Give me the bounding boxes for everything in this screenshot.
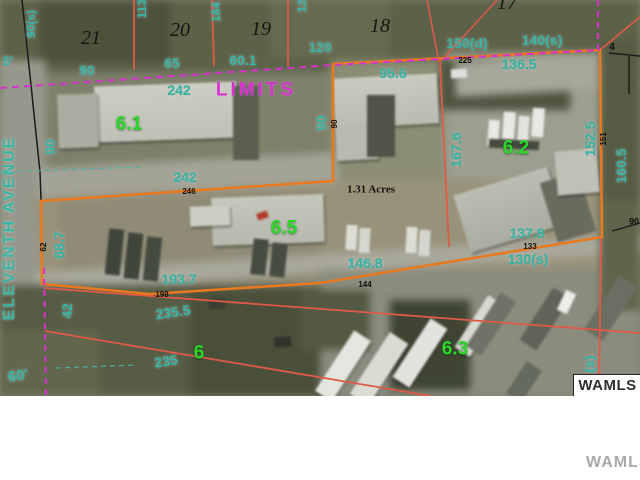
map-label--s-: (s) xyxy=(582,355,596,372)
map-label-65: 65 xyxy=(164,56,180,70)
map-label-6-1: 6.1 xyxy=(116,115,142,134)
map-label-198: 198 xyxy=(155,291,168,299)
map-label-160-5: 160.5 xyxy=(614,148,628,183)
map-label-120: 120 xyxy=(308,40,331,54)
map-label-146-8: 146.8 xyxy=(347,256,382,270)
map-label-62: 62 xyxy=(40,243,48,252)
map-label-4: 4 xyxy=(609,43,615,53)
map-label-20: 20 xyxy=(170,20,190,40)
map-label-90-s-: 90(s) xyxy=(25,10,37,38)
map-label-19: 19 xyxy=(251,19,271,39)
wamls-watermark-box: WAMLS xyxy=(573,374,640,396)
map-label-150-d-: 150(d) xyxy=(446,36,487,50)
map-label-184: 184 xyxy=(210,2,222,22)
map-label-90: 90 xyxy=(79,63,95,77)
map-label-42: 42 xyxy=(60,303,74,319)
map-label-21: 21 xyxy=(81,28,101,48)
map-label-137-8: 137.8 xyxy=(509,226,544,240)
map-label-235-5: 235.5 xyxy=(155,303,192,322)
map-label-144: 144 xyxy=(358,281,371,289)
map-label-6: 6 xyxy=(194,344,205,363)
map-label-1-31-acres: 1.31 Acres xyxy=(347,185,395,196)
map-label-133: 133 xyxy=(523,243,536,251)
map-label-90: 90 xyxy=(331,120,339,129)
map-label-242: 242 xyxy=(167,83,190,97)
map-label-90: 90 xyxy=(314,115,328,131)
listing-photo-page: 90(s)5'906560.1120150(d)140(s)95.6136.52… xyxy=(0,0,640,480)
map-label-95-6: 95.6 xyxy=(379,66,406,80)
map-label-235: 235 xyxy=(153,352,178,369)
wamls-footer-watermark: WAMLS xyxy=(586,454,640,472)
map-label-193-7: 193.7 xyxy=(161,272,196,286)
map-label-242: 242 xyxy=(173,170,196,184)
map-label-17: 17 xyxy=(497,0,517,13)
map-label-152-5: 152.5 xyxy=(583,121,597,156)
map-label-6-2: 6.2 xyxy=(503,139,529,158)
map-label-113: 113 xyxy=(136,0,148,19)
map-label-68-7: 68.7 xyxy=(52,231,66,258)
map-label-eleventh-avenue: ELEVENTH AVENUE xyxy=(2,136,18,321)
map-label-90: 90 xyxy=(629,218,639,227)
map-label-130-s-: 130(s) xyxy=(508,252,548,266)
map-label-136-5: 136.5 xyxy=(501,57,536,71)
map-label-18: 18 xyxy=(370,16,390,36)
map-label-151: 151 xyxy=(600,132,608,145)
map-label-167-6: 167.6 xyxy=(449,132,463,167)
map-label-90: 90 xyxy=(43,139,57,155)
map-label-140-s-: 140(s) xyxy=(522,33,562,47)
map-label-60-: 60' xyxy=(7,367,29,385)
map-label-limits: LIMITS xyxy=(216,81,296,100)
map-label-6-5: 6.5 xyxy=(271,219,297,238)
map-labels-layer: 90(s)5'906560.1120150(d)140(s)95.6136.52… xyxy=(0,0,640,396)
map-label-5-: 5' xyxy=(3,55,13,68)
map-label-60-1: 60.1 xyxy=(229,53,256,67)
map-label-225: 225 xyxy=(458,57,471,65)
map-label-6-3: 6.3 xyxy=(442,340,468,359)
map-label-12: 12 xyxy=(296,0,308,13)
map-label-246: 246 xyxy=(182,188,195,196)
aerial-parcel-map: 90(s)5'906560.1120150(d)140(s)95.6136.52… xyxy=(0,0,640,396)
